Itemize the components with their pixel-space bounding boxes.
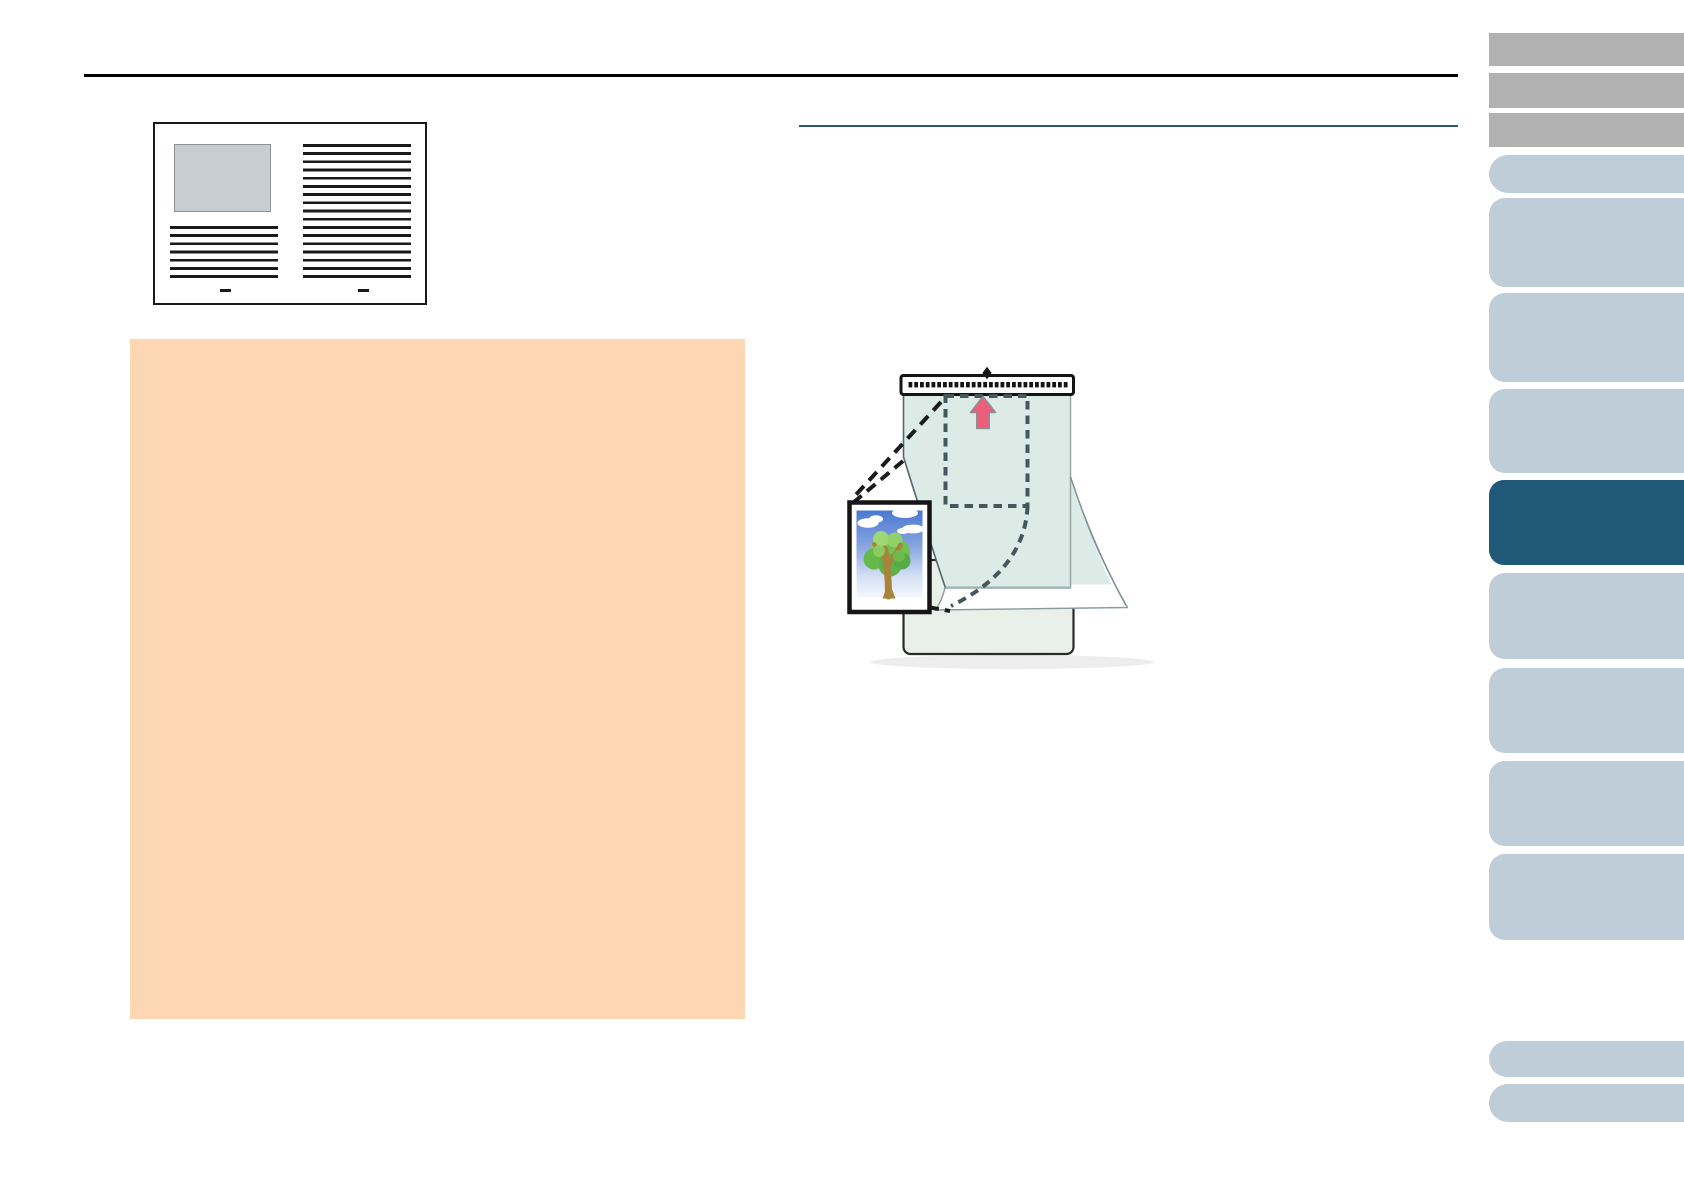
- toolbar-button-3[interactable]: [1489, 113, 1684, 147]
- toolbar-button-1[interactable]: [1489, 33, 1684, 66]
- figure-shadow: [870, 655, 1154, 669]
- page-nav-pill-1[interactable]: [1489, 1041, 1684, 1077]
- document-text-lines-right: [303, 144, 412, 278]
- chapter-tab-5[interactable]: [1489, 480, 1684, 565]
- callout-dash-lower: [854, 461, 903, 502]
- chapter-tab-3[interactable]: [1489, 293, 1684, 382]
- page-nav-pill-2[interactable]: [1489, 1084, 1684, 1122]
- chapter-tab-4[interactable]: [1489, 389, 1684, 473]
- chapter-tab-2[interactable]: [1489, 198, 1684, 287]
- chapter-tab-7[interactable]: [1489, 668, 1684, 753]
- photograph: [850, 503, 930, 613]
- manual-page: [0, 0, 1684, 1190]
- section-heading-rule: [799, 125, 1458, 127]
- document-footer-mark-left: [220, 289, 231, 292]
- sample-document-figure: [153, 122, 427, 305]
- chapter-tab-8[interactable]: [1489, 761, 1684, 846]
- document-footer-mark-right: [358, 289, 369, 292]
- document-text-lines-left: [170, 226, 278, 278]
- chapter-tab-6[interactable]: [1489, 573, 1684, 659]
- attention-note-box: [130, 339, 745, 1019]
- chapter-tab-1[interactable]: [1489, 155, 1684, 193]
- header-rule: [84, 74, 1458, 77]
- chapter-tab-9[interactable]: [1489, 854, 1684, 940]
- carrier-sheet-figure: [820, 350, 1160, 680]
- toolbar-button-2[interactable]: [1489, 73, 1684, 108]
- document-image-placeholder: [174, 144, 271, 212]
